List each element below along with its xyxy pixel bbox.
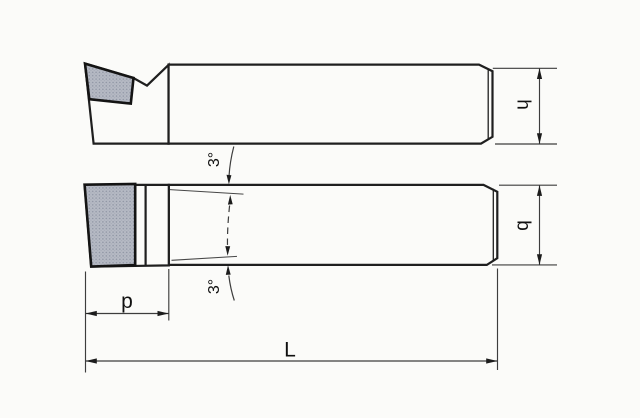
plan-view-carbide-insert [85, 184, 136, 267]
top-taper-angle-label: 3° [206, 152, 223, 167]
L-dimension-label: L [284, 339, 296, 362]
p-dimension-label: p [121, 290, 133, 313]
side-view-shank [169, 65, 493, 144]
plan-view [85, 184, 498, 267]
bottom-taper-angle-label: 3° [206, 279, 223, 294]
b-dimension-label: b [513, 220, 534, 231]
turning-tool-technical-drawing: h 3° 3° b p [0, 0, 640, 418]
drawing-canvas: h 3° 3° b p [0, 0, 640, 418]
plan-view-shank [169, 185, 498, 265]
h-dimension-label: h [513, 99, 534, 110]
